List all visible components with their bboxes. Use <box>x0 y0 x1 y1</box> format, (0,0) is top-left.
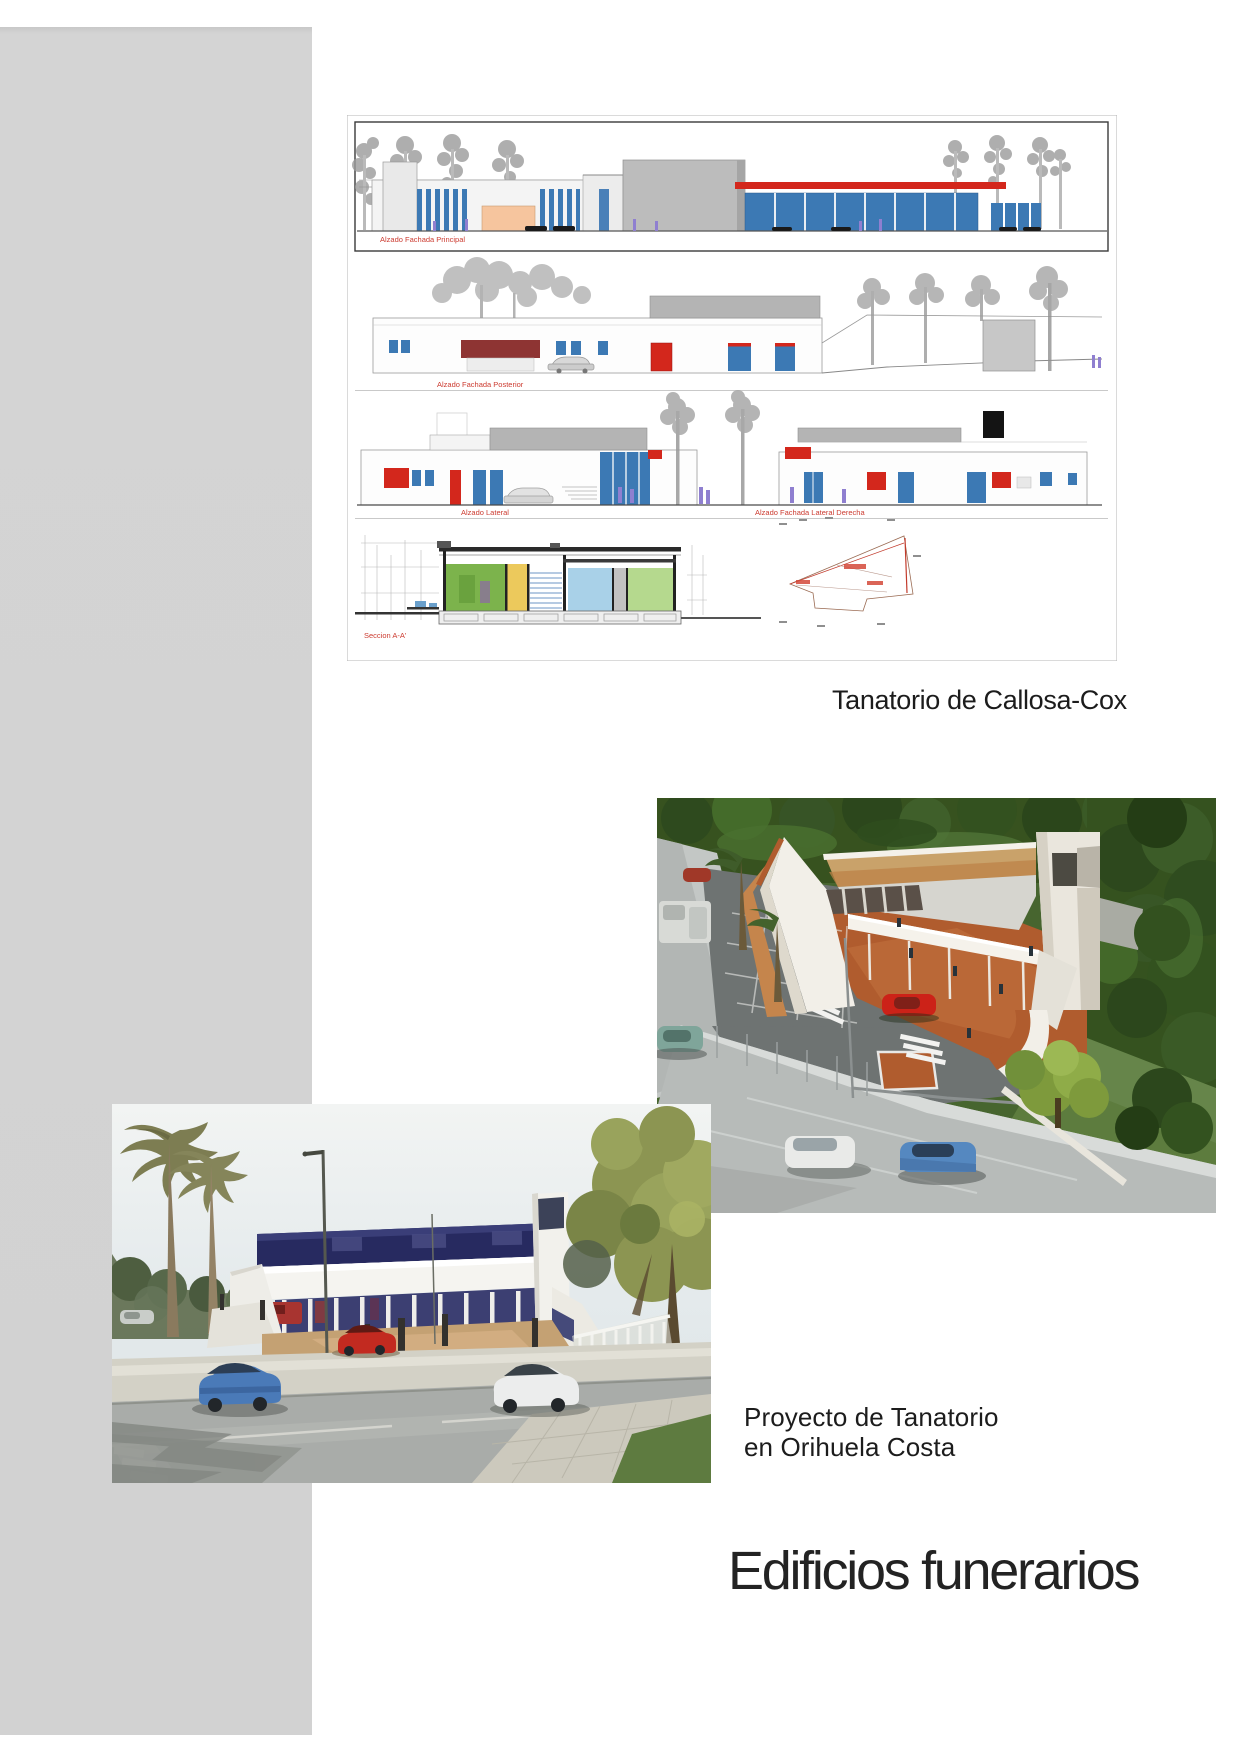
svg-text:Alzado Fachada Posterior: Alzado Fachada Posterior <box>437 380 524 389</box>
svg-text:Alzado Lateral: Alzado Lateral <box>461 508 509 517</box>
svg-text:Seccion A-A': Seccion A-A' <box>364 631 407 640</box>
svg-text:Alzado Fachada Lateral Dere: Alzado Fachada Lateral Derecha <box>755 508 865 517</box>
svg-text:Alzado Fachada Principal: Alzado Fachada Principal <box>380 235 465 244</box>
